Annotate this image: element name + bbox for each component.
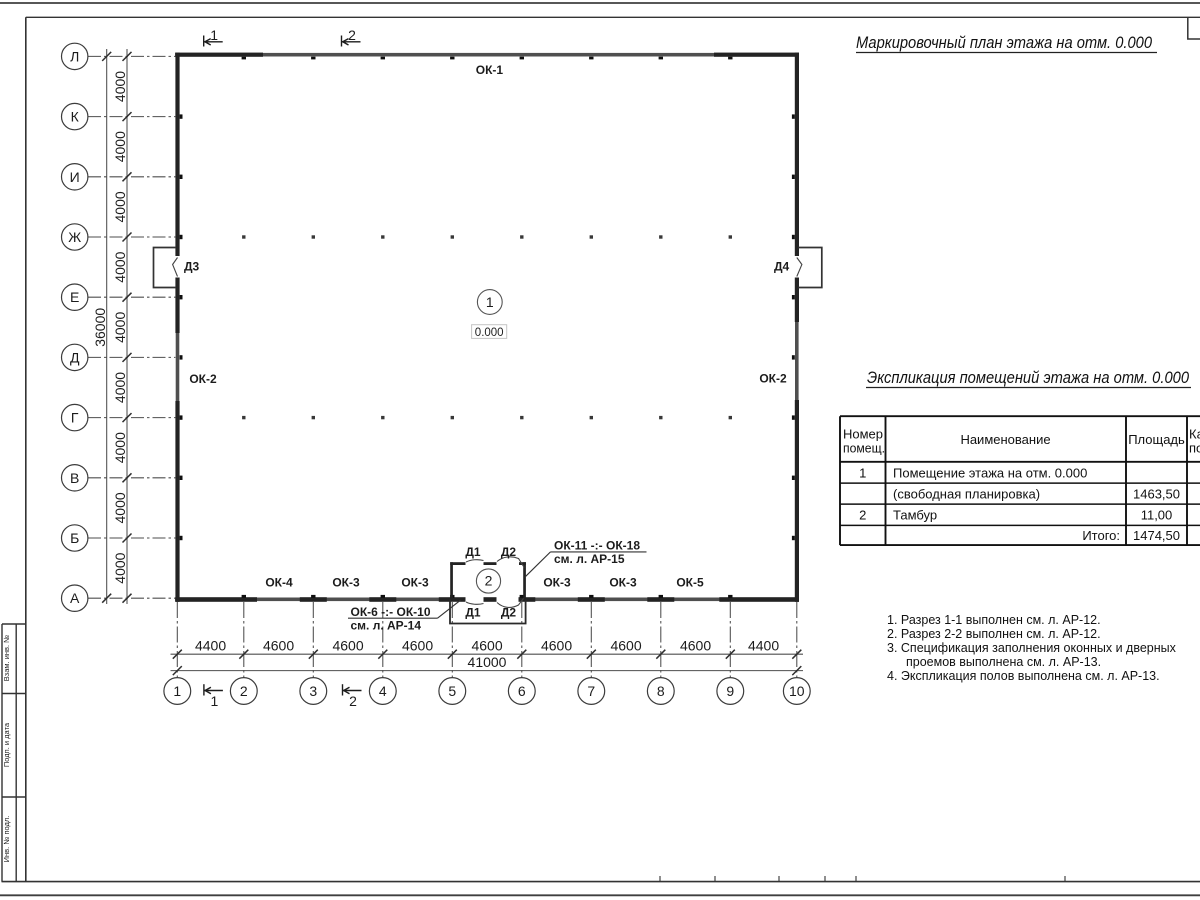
svg-text:1. Разрез 1-1 выполнен см. л.: 1. Разрез 1-1 выполнен см. л. АР-12. — [887, 613, 1101, 627]
svg-text:ОК-11 -:- ОК-18: ОК-11 -:- ОК-18 — [554, 538, 640, 552]
svg-text:4600: 4600 — [680, 638, 711, 654]
svg-text:41000: 41000 — [468, 654, 507, 670]
svg-text:см. л. АР-14: см. л. АР-14 — [351, 619, 422, 633]
svg-text:ОК-3: ОК-3 — [609, 576, 637, 590]
svg-text:Экспликация помещений этажа на: Экспликация помещений этажа на отм. 0.00… — [867, 368, 1189, 387]
svg-text:(свободная планировка): (свободная планировка) — [893, 486, 1040, 501]
svg-text:ОК-3: ОК-3 — [543, 576, 571, 590]
svg-text:1: 1 — [859, 465, 866, 480]
svg-text:4600: 4600 — [610, 638, 641, 654]
svg-text:1474,50: 1474,50 — [1133, 528, 1180, 543]
svg-text:Л: Л — [70, 48, 79, 64]
svg-text:4000: 4000 — [112, 312, 128, 343]
svg-text:ОК-3: ОК-3 — [332, 576, 360, 590]
svg-text:7: 7 — [587, 683, 595, 699]
svg-text:А: А — [70, 590, 80, 606]
svg-text:Д4: Д4 — [774, 260, 790, 274]
svg-text:4000: 4000 — [112, 71, 128, 102]
svg-text:помещ.: помещ. — [843, 441, 885, 456]
svg-text:4000: 4000 — [112, 432, 128, 463]
svg-text:ОК-2: ОК-2 — [759, 372, 787, 386]
svg-text:8: 8 — [657, 683, 665, 699]
svg-text:Д2: Д2 — [501, 545, 517, 559]
svg-text:ОК-3: ОК-3 — [401, 576, 429, 590]
svg-text:Категория: Категория — [1189, 427, 1200, 442]
svg-text:Итого:: Итого: — [1082, 528, 1120, 543]
svg-text:9: 9 — [726, 683, 734, 699]
svg-text:Д1: Д1 — [465, 606, 481, 620]
svg-text:3. Спецификация заполнения око: 3. Спецификация заполнения оконных и две… — [887, 641, 1177, 655]
svg-text:1: 1 — [486, 294, 494, 310]
svg-text:ОК-5: ОК-5 — [676, 576, 704, 590]
svg-text:Д2: Д2 — [501, 606, 517, 620]
svg-text:ОК-1: ОК-1 — [476, 63, 504, 77]
svg-text:2: 2 — [348, 27, 356, 43]
svg-text:2: 2 — [485, 573, 493, 589]
svg-text:4400: 4400 — [748, 638, 779, 654]
svg-text:Д: Д — [70, 349, 80, 365]
svg-text:Е: Е — [70, 289, 79, 305]
svg-text:2: 2 — [859, 507, 866, 522]
svg-text:Номер: Номер — [843, 427, 883, 442]
svg-text:4000: 4000 — [112, 372, 128, 403]
svg-text:Г: Г — [71, 410, 79, 426]
svg-text:Д1: Д1 — [465, 545, 481, 559]
svg-text:проемов выполнена см. л. АР-13: проемов выполнена см. л. АР-13. — [906, 655, 1101, 669]
svg-text:К: К — [71, 109, 80, 125]
svg-text:4400: 4400 — [195, 638, 226, 654]
svg-text:ОК-2: ОК-2 — [189, 372, 217, 386]
svg-text:ОК-4: ОК-4 — [265, 576, 293, 590]
svg-text:10: 10 — [789, 683, 805, 699]
svg-text:1: 1 — [211, 693, 219, 709]
svg-text:1: 1 — [173, 683, 181, 699]
svg-text:4. Экспликация полов выполнена: 4. Экспликация полов выполнена см. л. АР… — [887, 669, 1160, 683]
svg-text:6: 6 — [518, 683, 526, 699]
svg-text:Взам. инв. №: Взам. инв. № — [2, 635, 11, 681]
svg-text:4600: 4600 — [471, 638, 502, 654]
svg-text:4000: 4000 — [112, 552, 128, 583]
svg-text:Маркировочный план этажа на от: Маркировочный план этажа на отм. 0.000 — [856, 33, 1152, 52]
svg-text:11,00: 11,00 — [1141, 507, 1173, 522]
svg-text:Инв. № подл.: Инв. № подл. — [2, 816, 11, 863]
svg-text:Ж: Ж — [68, 229, 81, 245]
svg-text:Д3: Д3 — [184, 260, 200, 274]
svg-text:0.000: 0.000 — [475, 327, 504, 339]
svg-text:Наименование: Наименование — [960, 432, 1050, 447]
svg-text:4600: 4600 — [263, 638, 294, 654]
svg-text:см. л. АР-15: см. л. АР-15 — [554, 552, 625, 566]
svg-text:3: 3 — [309, 683, 317, 699]
svg-text:Тамбур: Тамбур — [893, 507, 937, 522]
svg-text:Подп. и дата: Подп. и дата — [2, 722, 11, 767]
svg-text:1463,50: 1463,50 — [1133, 486, 1180, 501]
svg-text:4: 4 — [379, 683, 387, 699]
svg-text:помещения: помещения — [1189, 441, 1200, 456]
svg-text:4600: 4600 — [541, 638, 572, 654]
svg-text:4000: 4000 — [112, 492, 128, 523]
svg-text:Площадь: Площадь — [1128, 432, 1185, 447]
svg-text:4000: 4000 — [112, 131, 128, 162]
svg-text:Б: Б — [70, 530, 79, 546]
svg-text:5: 5 — [448, 683, 456, 699]
svg-text:4000: 4000 — [112, 251, 128, 282]
svg-text:36000: 36000 — [92, 308, 108, 347]
svg-text:4600: 4600 — [332, 638, 363, 654]
svg-text:2. Разрез 2-2 выполнен см. л.: 2. Разрез 2-2 выполнен см. л. АР-12. — [887, 627, 1101, 641]
svg-text:В: В — [70, 470, 79, 486]
svg-text:4600: 4600 — [402, 638, 433, 654]
svg-text:Помещение этажа на отм. 0.000: Помещение этажа на отм. 0.000 — [893, 465, 1087, 480]
svg-text:4000: 4000 — [112, 191, 128, 222]
svg-text:1: 1 — [210, 27, 218, 43]
svg-text:2: 2 — [349, 693, 357, 709]
svg-text:ОК-6 -:- ОК-10: ОК-6 -:- ОК-10 — [351, 605, 431, 619]
svg-text:2: 2 — [240, 683, 248, 699]
svg-text:И: И — [70, 169, 80, 185]
